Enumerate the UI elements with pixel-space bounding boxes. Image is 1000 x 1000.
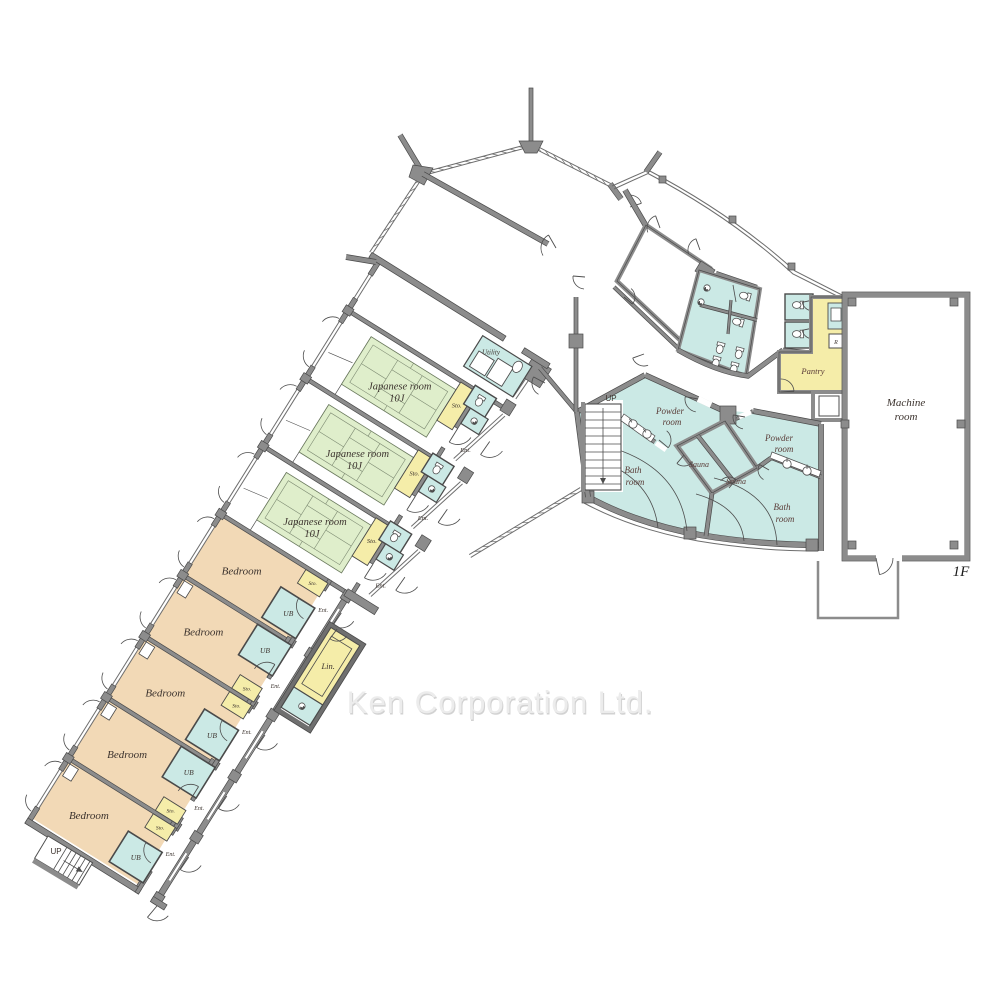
- svg-text:Sauna: Sauna: [726, 477, 746, 486]
- svg-text:Japanese room: Japanese room: [283, 517, 347, 528]
- svg-text:Ent.: Ent.: [417, 515, 429, 522]
- svg-text:Bedroom: Bedroom: [69, 810, 109, 822]
- svg-text:Bath: Bath: [625, 465, 642, 475]
- svg-text:Sto.: Sto.: [452, 403, 462, 410]
- svg-text:room: room: [895, 411, 918, 423]
- svg-text:Utility: Utility: [482, 349, 501, 357]
- svg-text:Ent.: Ent.: [374, 583, 386, 590]
- svg-text:10J: 10J: [347, 461, 364, 472]
- svg-text:UP: UP: [50, 847, 61, 856]
- svg-text:Powder: Powder: [655, 406, 684, 416]
- svg-text:Ken Corporation Ltd.: Ken Corporation Ltd.: [347, 684, 654, 720]
- svg-text:Machine: Machine: [886, 397, 926, 409]
- svg-text:room: room: [776, 514, 795, 524]
- svg-text:Sto.: Sto.: [243, 686, 251, 692]
- svg-text:Japanese room: Japanese room: [368, 381, 432, 392]
- svg-text:UP: UP: [605, 394, 616, 403]
- svg-text:room: room: [626, 477, 645, 487]
- svg-text:UB: UB: [184, 768, 194, 777]
- svg-text:Bedroom: Bedroom: [107, 749, 147, 761]
- svg-text:Sto.: Sto.: [367, 538, 377, 545]
- svg-text:UB: UB: [207, 731, 217, 740]
- svg-text:UB: UB: [283, 609, 293, 618]
- svg-text:Ent.: Ent.: [270, 684, 281, 690]
- svg-text:Ent.: Ent.: [241, 730, 252, 736]
- svg-text:Sto.: Sto.: [156, 825, 164, 831]
- svg-text:Ent.: Ent.: [459, 447, 471, 454]
- svg-text:Bedroom: Bedroom: [145, 688, 185, 700]
- svg-text:Sauna: Sauna: [689, 460, 709, 469]
- svg-text:room: room: [775, 444, 794, 454]
- svg-text:Ent.: Ent.: [317, 608, 328, 614]
- svg-text:Pantry: Pantry: [800, 366, 824, 376]
- svg-text:UB: UB: [131, 853, 141, 862]
- svg-text:Sto.: Sto.: [232, 703, 240, 709]
- svg-text:Bath: Bath: [774, 502, 791, 512]
- svg-text:Bedroom: Bedroom: [183, 627, 223, 639]
- svg-text:room: room: [663, 417, 682, 427]
- svg-text:Bedroom: Bedroom: [222, 566, 262, 578]
- svg-text:1F: 1F: [953, 564, 971, 580]
- svg-text:Sto.: Sto.: [308, 581, 316, 587]
- svg-text:R: R: [833, 340, 838, 346]
- svg-text:10J: 10J: [304, 529, 321, 540]
- svg-text:Ent.: Ent.: [165, 852, 176, 858]
- svg-text:Sto.: Sto.: [166, 809, 174, 815]
- svg-text:Lin.: Lin.: [320, 661, 334, 671]
- svg-text:UB: UB: [260, 646, 270, 655]
- svg-text:Powder: Powder: [764, 433, 793, 443]
- svg-text:Ent.: Ent.: [193, 806, 204, 812]
- svg-text:10J: 10J: [389, 393, 406, 404]
- svg-text:Sto.: Sto.: [409, 470, 419, 477]
- svg-text:Japanese room: Japanese room: [326, 449, 390, 460]
